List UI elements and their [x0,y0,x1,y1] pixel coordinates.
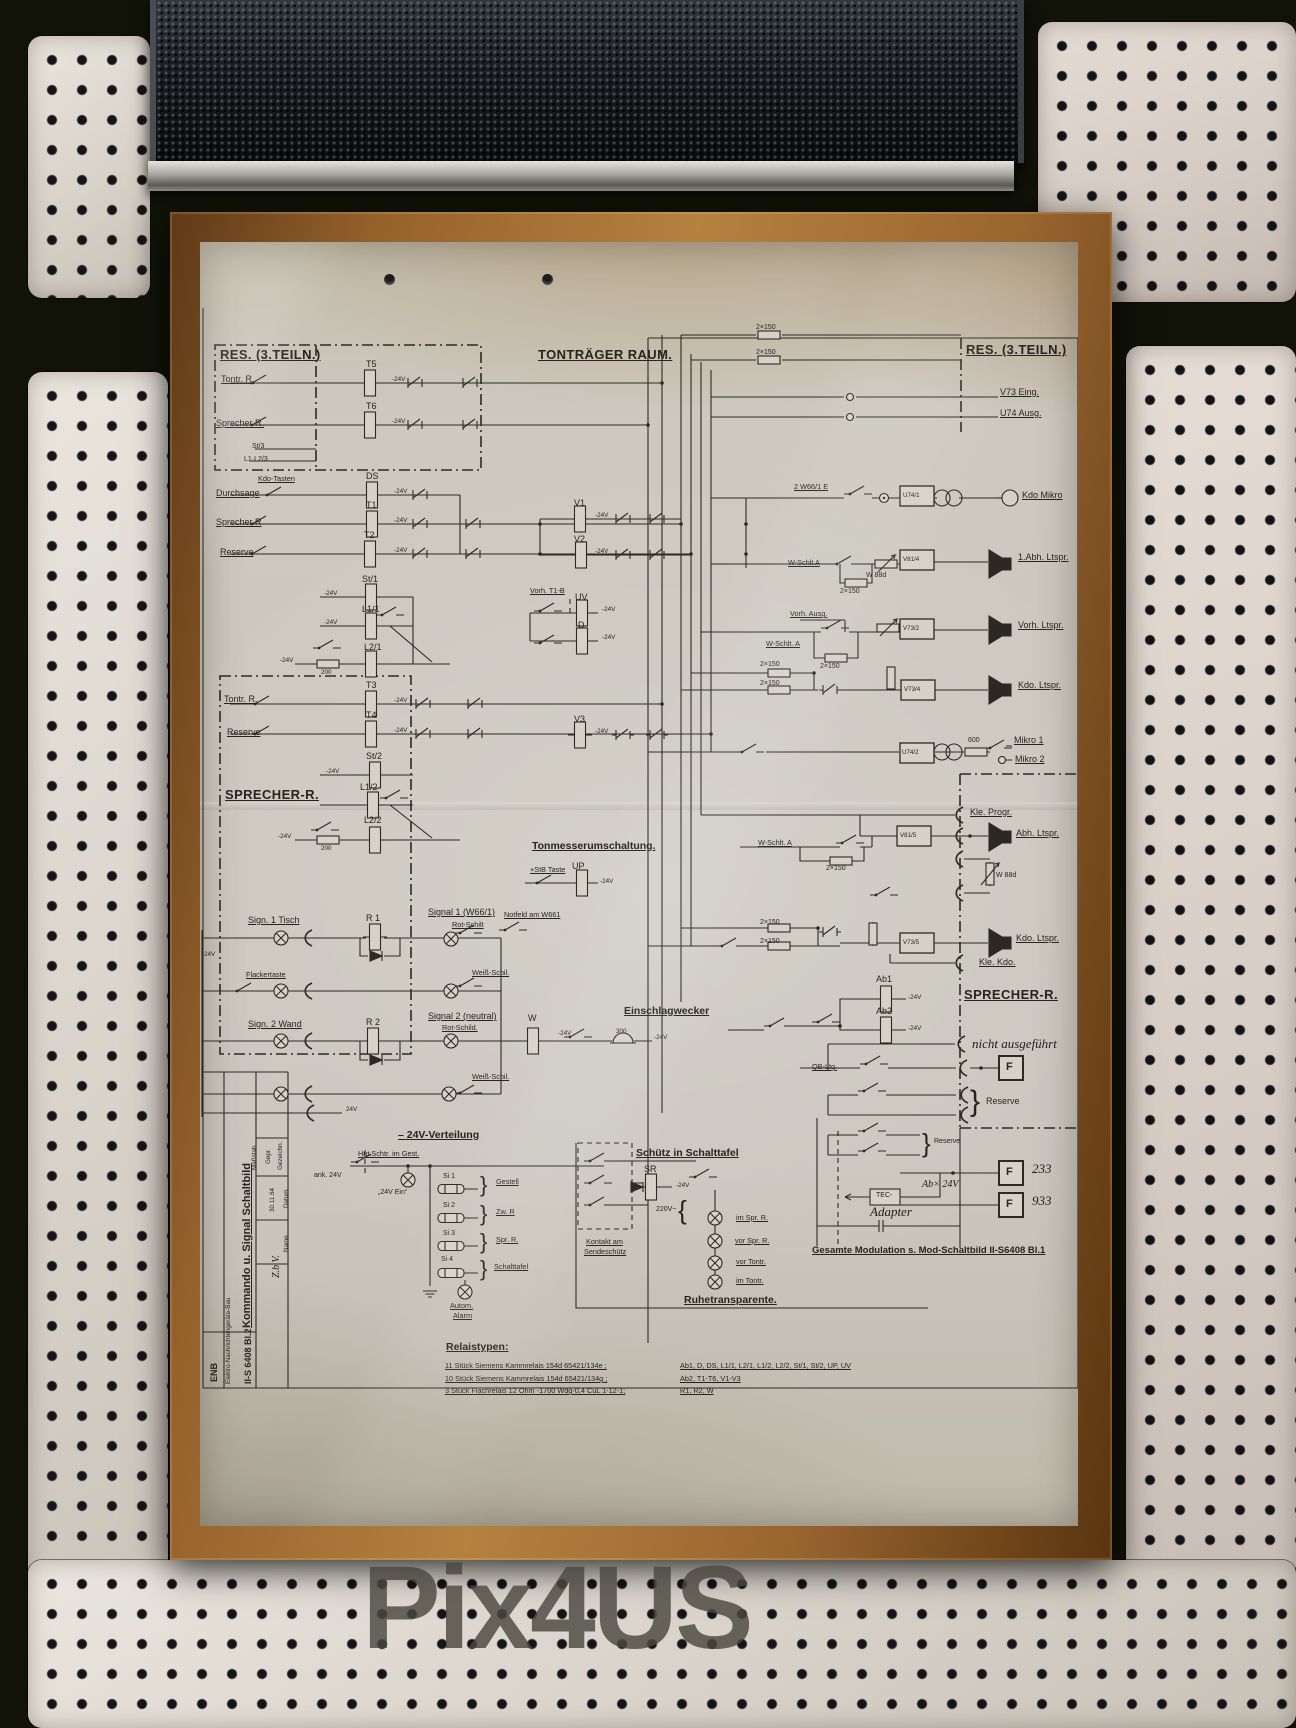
diagram-label: -24V [600,879,613,885]
diagram-label: -24V [394,548,407,554]
diagram-label: -24V [602,635,615,641]
diagram-label: -24V [394,489,407,495]
diagram-label: St/3 [252,443,264,450]
diagram-label: SPRECHER-R. [225,788,319,801]
diagram-label: W 88d [866,572,886,579]
diagram-label: Reserve [227,728,261,737]
diagram-label: W-Schlt. A [758,839,792,846]
diagram-label: Mikro 2 [1015,755,1045,764]
diagram-label: 24V [204,952,215,958]
speaker-grille [150,0,1024,163]
diagram-label: 2 W66/1 E [794,483,828,490]
diagram-label: -24V [602,607,615,613]
diagram-label: -24V [394,728,407,734]
diagram-label: vor Spr. R. [735,1237,769,1244]
diagram-label: DS [366,472,379,481]
diagram-label: -24V [676,1183,689,1189]
diagram-label: 933 [1032,1194,1052,1207]
diagram-label: Autom. [450,1302,473,1309]
schematic-labels-layer: RES. (3.TEILN.)Tontr. R.T5-24VSprecher R… [200,242,1078,1526]
diagram-label: -24V [324,620,337,626]
diagram-label: Si 4 [441,1256,453,1263]
diagram-label: R 1 [366,914,380,923]
diagram-label: TEC- [876,1192,892,1199]
diagram-label: -24V [392,419,405,425]
diagram-label: Kdo Mikro [1022,491,1063,500]
diagram-label: Weiß-Schil. [472,969,509,976]
diagram-label: UP [572,862,585,871]
diagram-label: Sprecher R [216,518,262,527]
diagram-label: Alarm [453,1312,472,1319]
diagram-label: +StB Taste [530,866,565,873]
watermark-text: Pix4US [362,1540,751,1676]
diagram-label: Ab1 [876,975,892,984]
diagram-label: W-Schlt. A [766,640,800,647]
diagram-label: Relaistypen: [446,1342,508,1353]
diagram-label: Ab2 [876,1007,892,1016]
diagram-label: V81/4 [903,557,919,563]
diagram-label: L2/1 [364,643,382,652]
diagram-label: V73/2 [903,626,919,632]
diagram-label: V2 [574,535,585,544]
diagram-label: 30.11.64 [270,1188,276,1212]
diagram-label: Datum [284,1189,290,1208]
diagram-label: 600 [968,737,980,744]
diagram-label: Vorh. T1-B [530,587,565,594]
diagram-label: 11 Stück Siemens Kammrelais 154d 65421/1… [445,1362,607,1369]
diagram-label: -24V [595,513,608,519]
diagram-label: Schalttafel [494,1263,528,1270]
diagram-label: } [480,1174,487,1196]
diagram-label: Si 3 [443,1230,455,1237]
diagram-label: -24V [392,377,405,383]
diagram-label: Si 1 [443,1173,455,1180]
diagram-label: -24V [324,591,337,597]
diagram-label: nicht ausgeführt [972,1037,1057,1050]
diagram-label: -24V [558,1031,571,1037]
diagram-label: Ruhetransparente. [684,1295,777,1306]
diagram-label: W-Schlt A [788,559,820,566]
diagram-label: Kle. Kdo. [979,958,1016,967]
diagram-label: St/2 [366,752,382,761]
diagram-label: U74 Ausg. [1000,409,1042,418]
diagram-label: Rot-Schilt [452,921,484,928]
diagram-label: 24V [346,1107,357,1113]
diagram-label: U74/1 [903,493,920,499]
diagram-label: Durchsage [216,489,260,498]
pegboard-panel-right [1126,346,1296,1728]
diagram-label: -24V [394,698,407,704]
diagram-label: W [528,1014,537,1023]
diagram-label: Kdo. Ltspr. [1016,934,1059,943]
diagram-label: 200 [321,846,332,852]
diagram-label: 2×150 [756,349,776,356]
diagram-label: 2×150 [820,663,840,670]
diagram-label: Vorh. Ausg. [790,610,827,617]
diagram-label: Einschlagwecker [624,1006,709,1017]
diagram-label: Gepr. [266,1149,272,1164]
diagram-label: T6 [366,402,377,411]
diagram-label: ank. 24V [314,1172,342,1179]
diagram-label: -24V [394,518,407,524]
diagram-label: W 88d [996,872,1016,879]
diagram-label: Flackertaste [246,971,286,978]
diagram-label: 2×150 [760,919,780,926]
diagram-label: R1, R2, W [680,1387,714,1394]
diagram-label: T3 [366,681,377,690]
diagram-label: RES. (3.TEILN.) [966,343,1067,356]
diagram-label: TONTRÄGER RAUM. [538,348,672,361]
diagram-label: SR [644,1165,657,1174]
diagram-label: Signal 2 (neutral) [428,1012,497,1021]
diagram-label: II-S 6408 Bl.2 [244,1328,253,1384]
diagram-label: -24V [595,549,608,555]
diagram-label: Elektro-Nachrichtengeräte-Bau [226,1298,232,1384]
diagram-label: 2×150 [826,865,846,872]
diagram-label: 220V~ [656,1206,676,1213]
diagram-label: V1 [574,499,585,508]
diagram-label: Tontr. R. [221,375,255,384]
diagram-label: -24V [654,1035,667,1041]
diagram-label: Sign. 2 Wand [248,1020,302,1029]
diagram-label: Kommando u. Signal Schaltbild [242,1163,253,1328]
diagram-label: Kontakt am [586,1238,623,1245]
diagram-label: Rot-Schild. [442,1024,478,1031]
diagram-label: 2×150 [760,680,780,687]
diagram-label: -24V [908,995,921,1001]
diagram-label: -24V [280,658,293,664]
diagram-label: -24V [278,834,291,840]
diagram-label: V81/5 [900,833,916,839]
diagram-label: – 24V-Verteilung [398,1130,479,1141]
diagram-label: UV [575,593,588,602]
diagram-label: R 2 [366,1018,380,1027]
diagram-label: Sendeschütz [584,1248,626,1255]
diagram-label: L2/2 [364,816,382,825]
diagram-label: 2×150 [760,938,780,945]
diagram-label: Abh. Ltspr. [1016,829,1059,838]
pegboard-panel-top-left [28,36,150,298]
diagram-label: } [970,1087,980,1117]
diagram-label: SPRECHER-R. [964,988,1058,1001]
diagram-label: -24V [595,729,608,735]
diagram-label: Schütz in Schalttafel [636,1148,739,1159]
photo-scene: { "watermark": {"text": "Pix4US"}, "diag… [0,0,1296,1728]
diagram-label: Reserve [986,1097,1020,1106]
diagram-label: T2 [364,531,375,540]
diagram-label: Ab1, D, DS, L1/1, L2/1, L1/2, L2/2, St/1… [680,1362,851,1369]
diagram-label: Kdo. Ltspr. [1018,681,1061,690]
diagram-label: V73/5 [903,940,919,946]
diagram-label: Vorh. Ltspr. [1018,621,1064,630]
diagram-label: Reserve [934,1138,960,1145]
diagram-label: -24V [326,769,339,775]
diagram-label: Adapter [870,1205,912,1218]
diagram-label: F [1006,1199,1013,1210]
diagram-label: 2×150 [840,588,860,595]
diagram-label: } [922,1130,931,1156]
diagram-label: Zw. R [496,1208,515,1215]
diagram-label: Tontr. R. [224,695,258,704]
diagram-label: Ab2, T1-T6, V1-V3 [680,1375,741,1382]
diagram-label: Sprecher R. [216,419,264,428]
diagram-label: L1·L2/3 [244,456,268,463]
diagram-label: 2×150 [760,661,780,668]
diagram-label: 200 [321,670,332,676]
diagram-label: T1 [366,501,377,510]
diagram-label: ENB [210,1363,219,1382]
diagram-label: V3 [574,715,585,724]
diagram-label: Gezeichn. [278,1142,284,1170]
diagram-label: T4 [366,711,377,720]
diagram-label: Z.b.V. [272,1255,282,1278]
diagram-label: Signal 1 (W66/1) [428,908,495,917]
diagram-label: St/1 [362,575,378,584]
diagram-label: Sign. 1 Tisch [248,916,300,925]
metal-shelf-edge [148,161,1014,191]
diagram-label: Spr. R. [496,1236,518,1243]
diagram-label: L1/2 [360,783,378,792]
diagram-label: Gesamte Modulation s. Mod-Schaltbild II-… [812,1246,1045,1256]
diagram-label: Reserve [220,548,254,557]
diagram-label: Weiß-Schil. [472,1073,509,1080]
diagram-label: T5 [366,360,377,369]
diagram-label: F [1006,1167,1013,1178]
diagram-label: 1.Abh. Ltspr. [1018,553,1069,562]
diagram-label: { [678,1197,687,1223]
diagram-label: -24V [908,1026,921,1032]
diagram-label: Notfeld am W661 [504,911,560,918]
diagram-label: Ab× 24V [922,1180,958,1190]
diagram-label: RES. (3.TEILN.) [220,348,321,361]
diagram-label: 2×150 [756,324,776,331]
diagram-label: U74/2 [902,750,919,756]
diagram-label: D [578,621,585,630]
diagram-label: V73 Eing. [1000,388,1039,397]
diagram-label: QB-Ltg. [812,1063,837,1070]
diagram-label: L1/1 [362,605,380,614]
diagram-label: Tonmesserumschaltung. [532,841,656,852]
diagram-label: } [480,1258,487,1280]
schematic-paper: RES. (3.TEILN.)Tontr. R.T5-24VSprecher R… [200,242,1078,1526]
diagram-label: Name [284,1235,290,1252]
diagram-label: im Spr. R. [736,1214,768,1221]
diagram-label: vor Tontr. [736,1258,766,1265]
diagram-label: „24V Ein“ [378,1189,407,1196]
diagram-label: 233 [1032,1162,1052,1175]
diagram-label: 3 Stück Flachrelais 12 Ohm -1700 Wdg-0,4… [445,1387,625,1394]
diagram-label: 300 [616,1029,627,1035]
pegboard-panel-left [28,372,168,1728]
diagram-label: F [1006,1062,1013,1073]
diagram-label: Si 2 [443,1202,455,1209]
diagram-label: } [480,1203,487,1225]
diagram-label: } [480,1231,487,1253]
diagram-label: Kle. Progr. [970,808,1012,817]
diagram-label: Hpt.Schtr. im Gest. [358,1150,419,1157]
diagram-label: im Tontr. [736,1277,763,1284]
diagram-label: Gestell [496,1178,519,1185]
wooden-frame: RES. (3.TEILN.)Tontr. R.T5-24VSprecher R… [170,212,1112,1560]
diagram-label: Kdo-Tasten [258,475,295,482]
diagram-label: V73/4 [904,687,920,693]
diagram-label: 10 Stück Siemens Kammrelais 154d 65421/1… [445,1375,607,1382]
diagram-label: Mikro 1 [1014,736,1044,745]
